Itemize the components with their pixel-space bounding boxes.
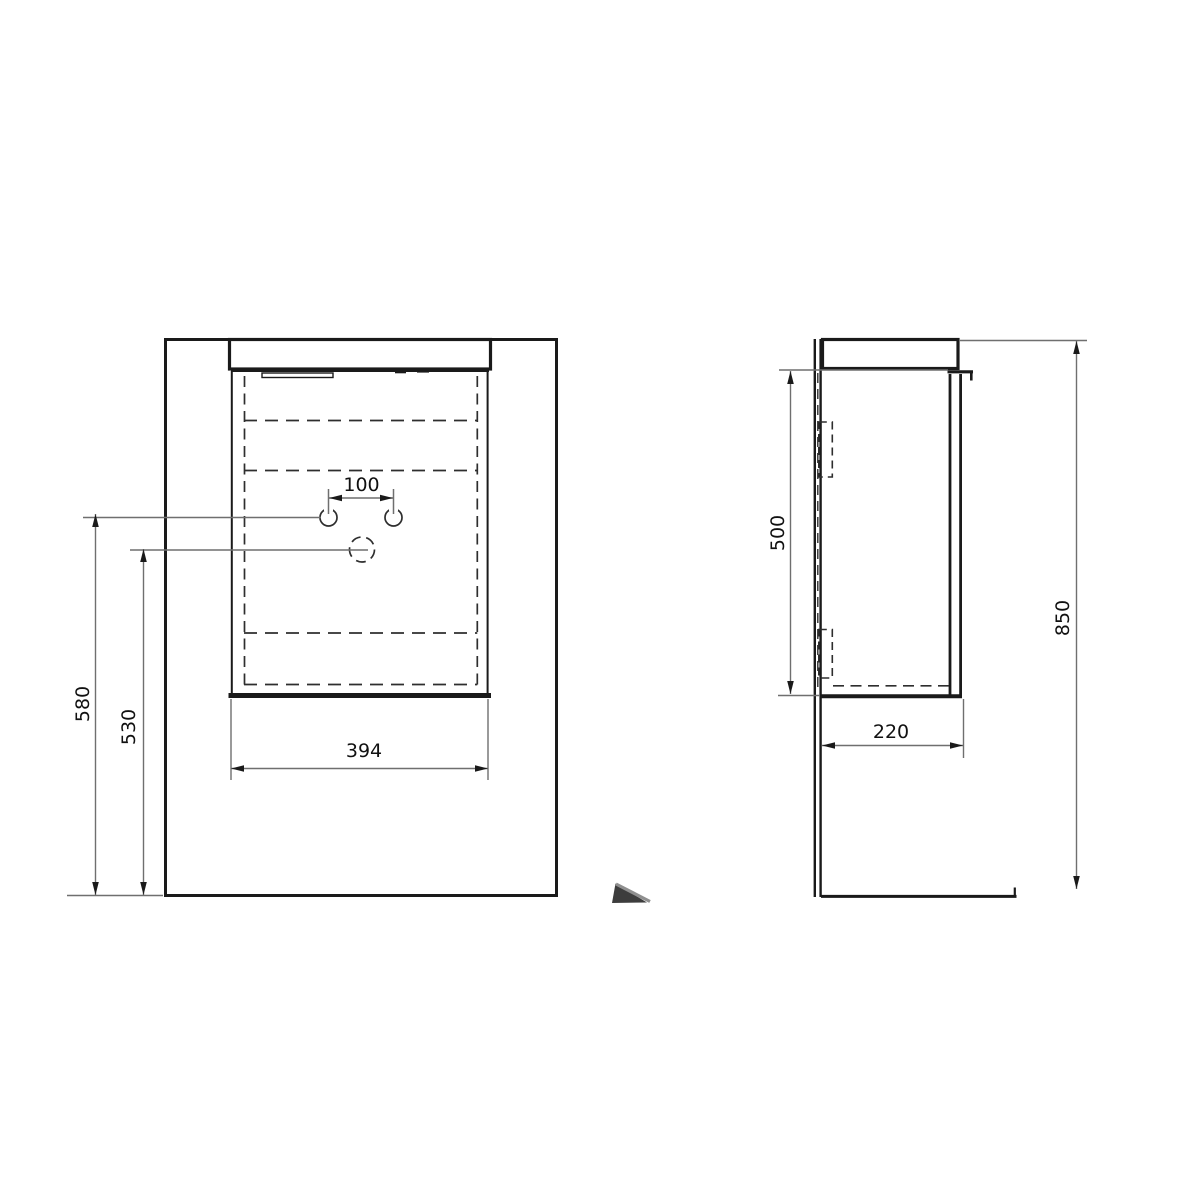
- artifact-wedge: [612, 884, 650, 904]
- dim-500-body-height: 500: [767, 370, 948, 696]
- front-view: 100 580 530 394: [67, 340, 557, 896]
- dim-530-arrow-bottom: [140, 882, 147, 895]
- dim-850-arrow-top: [1073, 341, 1080, 354]
- dim-label-faucet-height: 580: [72, 686, 94, 722]
- door-top-edge-detail: [262, 373, 333, 378]
- dim-100-arrow-left: [329, 495, 342, 501]
- dim-100-hole-spacing: 100: [329, 474, 394, 514]
- dim-220-arrow-left: [822, 742, 835, 749]
- dim-220-arrow-right: [950, 742, 963, 749]
- wall-panel-outline: [166, 340, 557, 896]
- dim-label-overall-height: 850: [1052, 600, 1074, 636]
- dim-580-arrow-top: [92, 514, 99, 527]
- dim-580-faucet-height: 580: [72, 514, 99, 895]
- dim-850-arrow-bottom: [1073, 876, 1080, 889]
- dim-394-arrow-left: [231, 765, 244, 772]
- dim-220-depth: 220: [822, 699, 964, 758]
- vanity-dimension-drawing: 100 580 530 394: [0, 0, 1200, 1200]
- technical-drawing-page: 100 580 530 394: [0, 0, 1200, 1200]
- dim-850-overall-height: 850: [959, 341, 1087, 890]
- dim-394-arrow-right: [475, 765, 488, 772]
- dim-530-drain-height: 530: [118, 549, 147, 895]
- dim-label-hole-spacing: 100: [343, 474, 379, 496]
- vanity-top-side: [823, 340, 959, 369]
- vanity-top-front: [230, 340, 491, 370]
- dim-500-arrow-bottom: [787, 681, 794, 694]
- dim-580-arrow-bottom: [92, 882, 99, 895]
- dim-500-arrow-top: [787, 371, 794, 384]
- side-view: 500 850 220: [767, 339, 1087, 897]
- dim-100-arrow-right: [380, 495, 393, 501]
- dim-label-depth: 220: [873, 721, 909, 743]
- dim-530-arrow-top: [140, 549, 147, 562]
- dim-label-cabinet-width: 394: [346, 740, 382, 762]
- dim-label-body-height: 500: [767, 515, 789, 551]
- dim-label-drain-height: 530: [118, 709, 140, 745]
- dim-394-cabinet-width: 394: [231, 699, 488, 780]
